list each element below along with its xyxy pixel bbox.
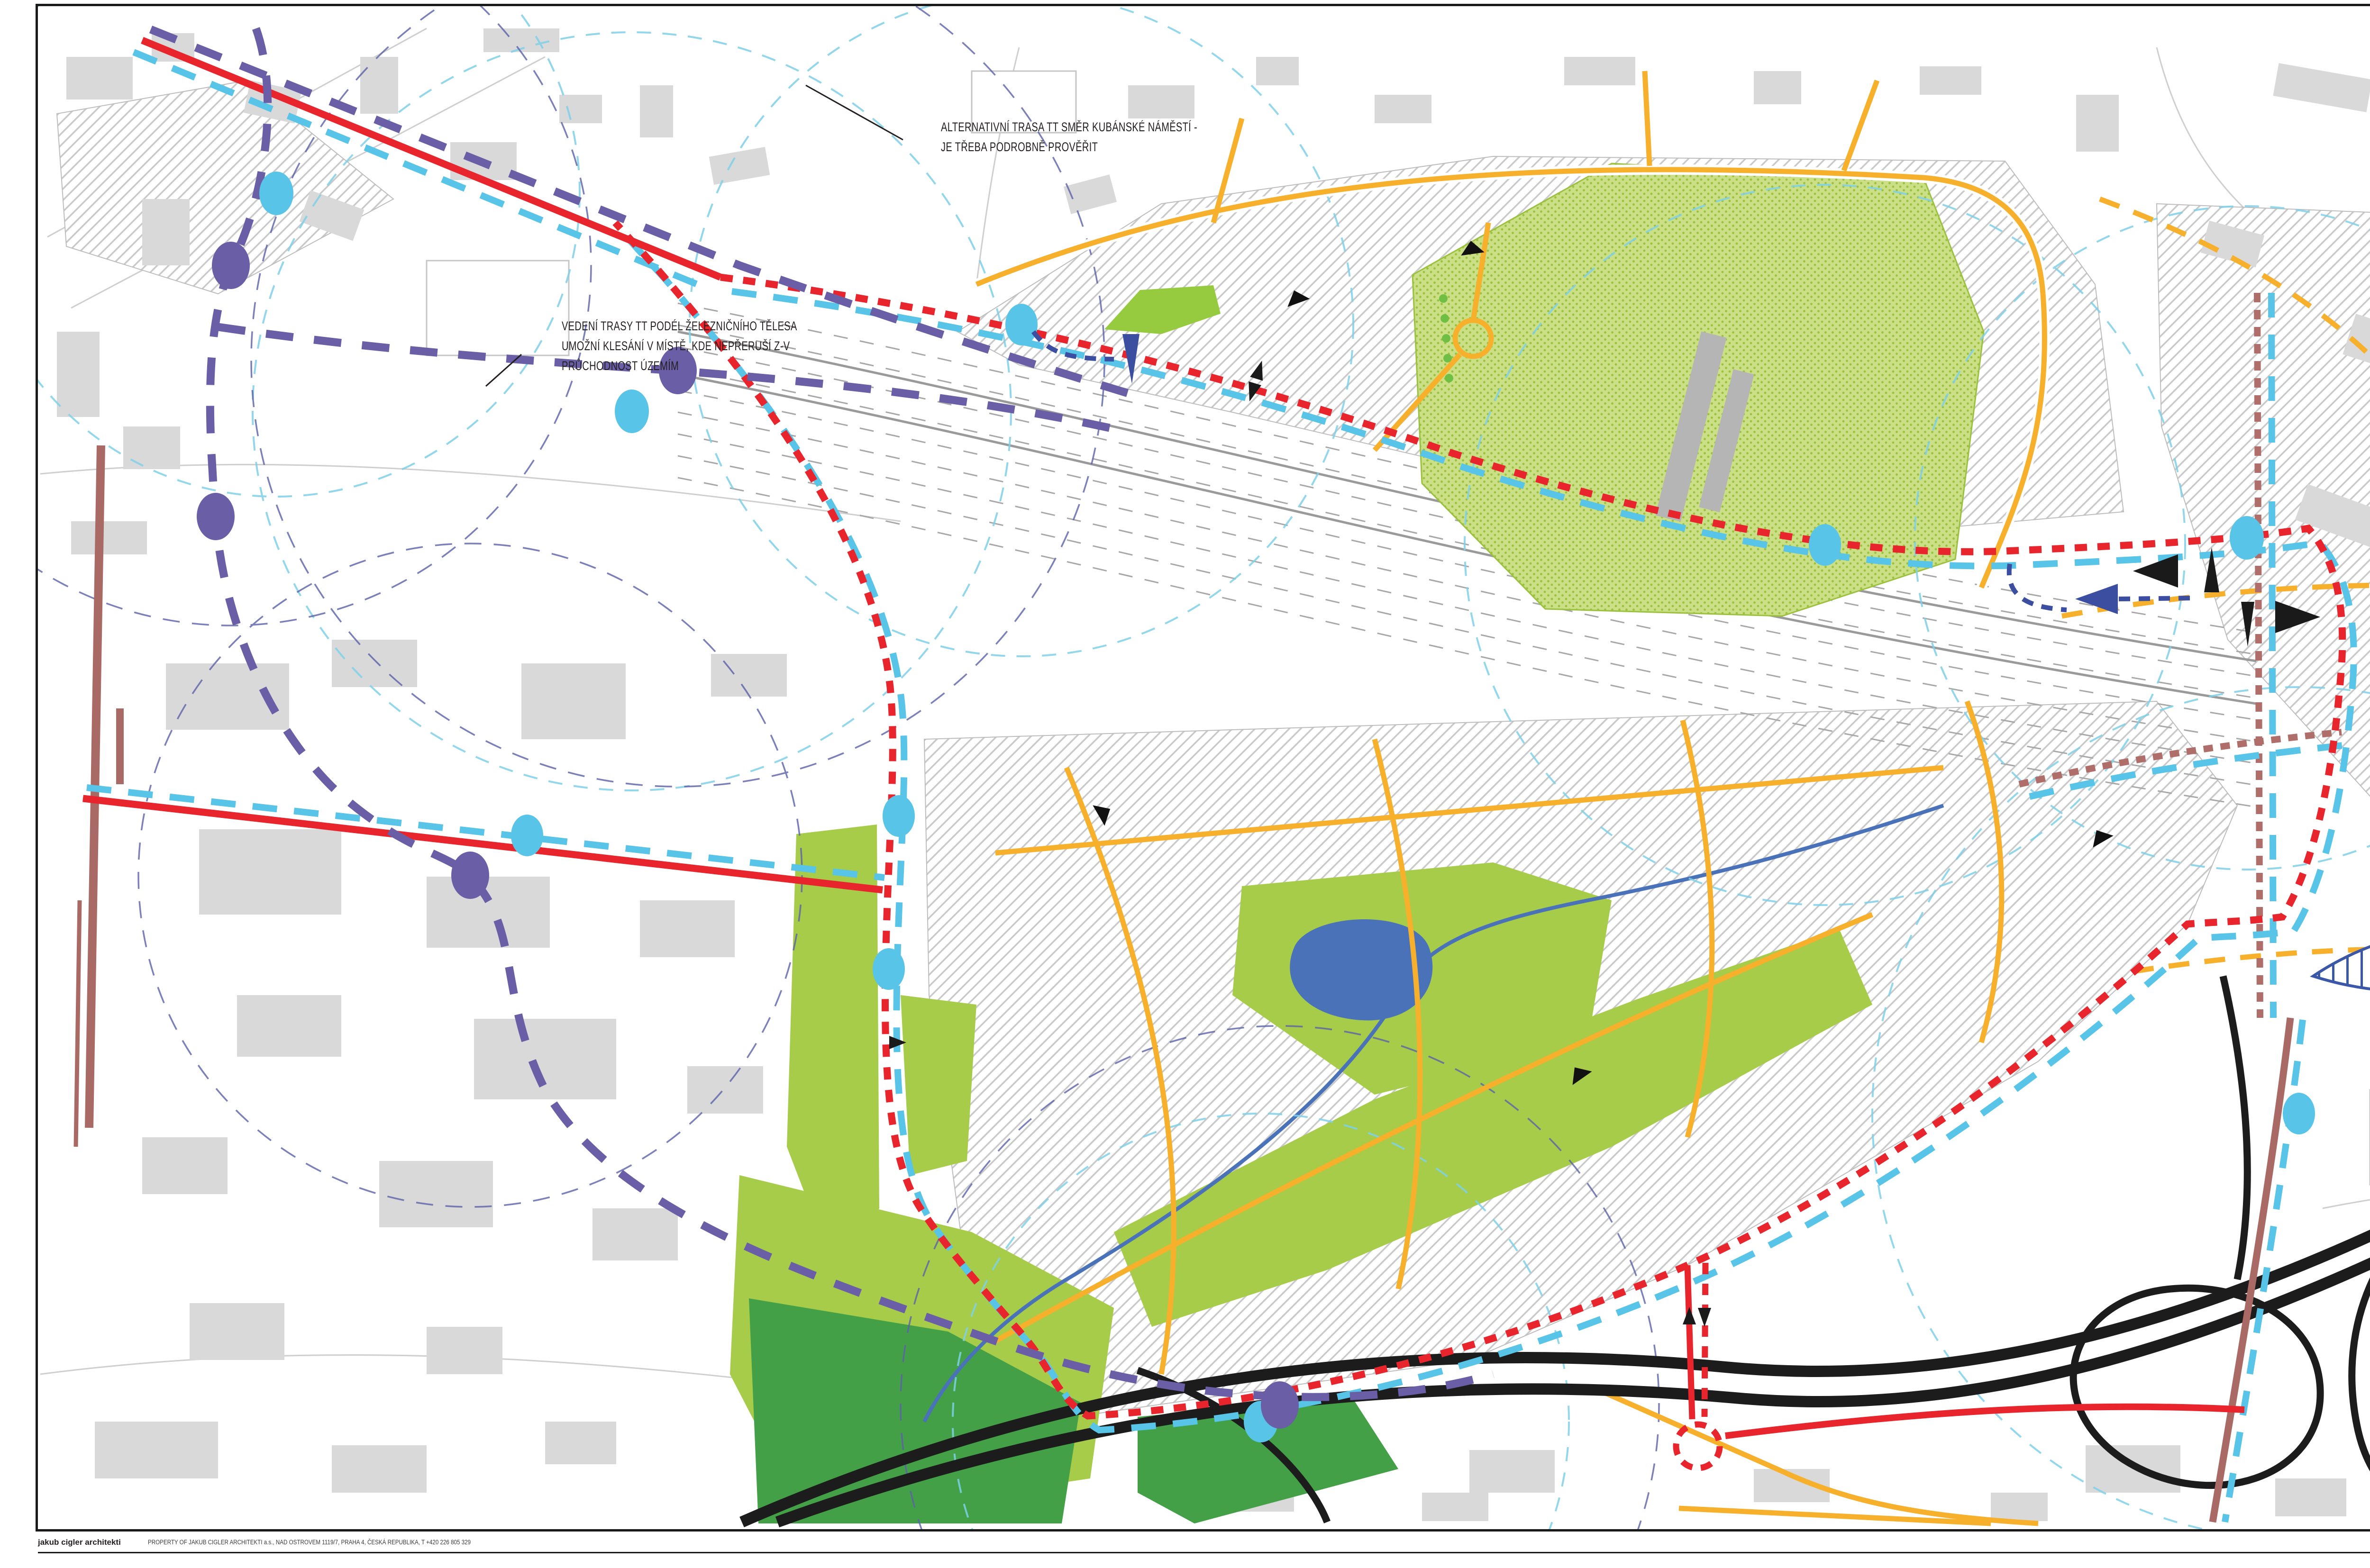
drawing-sheet: ALTERNATIVNÍ TRASA TT SMĚR KUBÁNSKÉ NÁMĚ… bbox=[0, 0, 2370, 1568]
footer-rule bbox=[38, 1552, 2370, 1553]
sheet-frame bbox=[36, 4, 2370, 1532]
studio-logo: jakub cigler architekti bbox=[38, 1538, 121, 1547]
footer-property-text: PROPERTY OF JAKUB CIGLER ARCHITEKTI a.s.… bbox=[148, 1539, 471, 1546]
footer-bar: jakub cigler architekti PROPERTY OF JAKU… bbox=[38, 1537, 2370, 1556]
